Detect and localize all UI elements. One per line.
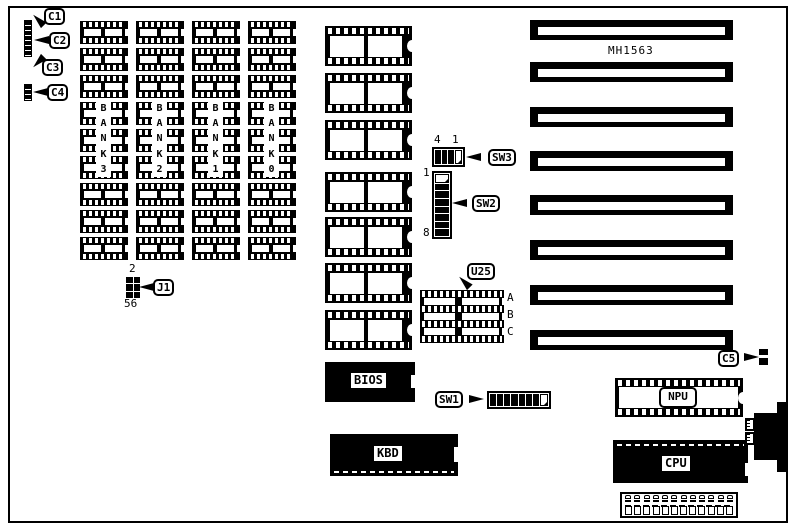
bank-label: BANK1 <box>208 101 223 177</box>
expansion-slot <box>530 20 733 40</box>
sw2-dip-switch <box>432 171 452 239</box>
motherboard-diagram: { "diagram": { "type": "motherboard comp… <box>0 0 791 531</box>
callout-sw2-pointer <box>452 199 467 207</box>
j1-pin56-label: 56 <box>124 298 137 310</box>
memory-chip <box>248 237 296 260</box>
callout-sw1-pointer <box>469 395 484 403</box>
callout-c2-pointer <box>34 36 49 44</box>
memory-chip <box>136 21 184 44</box>
u25-row-b-label: B <box>507 309 514 321</box>
memory-chip <box>80 48 128 71</box>
callout-c2: C2 <box>49 32 70 49</box>
keyboard-connector <box>754 413 780 460</box>
memory-chip <box>192 183 240 206</box>
expansion-slot <box>530 285 733 305</box>
dip-socket <box>325 172 412 212</box>
memory-chip <box>192 21 240 44</box>
bios-chip-label: BIOS <box>351 373 386 388</box>
expansion-slot <box>530 151 733 171</box>
u25-row-c-label: C <box>507 326 514 338</box>
bios-chip: BIOS <box>325 362 415 402</box>
sw2-pin1-label: 1 <box>423 167 430 179</box>
u25-row-a-label: A <box>507 292 514 304</box>
sw3-pin1-label: 1 <box>452 134 459 146</box>
connector-c4-strip <box>24 84 32 101</box>
power-connector <box>620 492 738 518</box>
memory-chip <box>248 183 296 206</box>
memory-chip <box>136 75 184 98</box>
npu-socket: NPU <box>615 378 743 417</box>
sw3-pin4-label: 4 <box>434 134 441 146</box>
memory-chip <box>192 237 240 260</box>
callout-c3: C3 <box>42 59 63 76</box>
bank-label: BANK3 <box>96 101 111 177</box>
callout-c1: C1 <box>44 8 65 25</box>
callout-c5: C5 <box>718 350 739 367</box>
j1-pin2-label: 2 <box>129 263 136 275</box>
dip-socket <box>325 217 412 257</box>
memory-chip <box>80 237 128 260</box>
kbd-chip: KBD <box>330 434 458 476</box>
connector-c5 <box>759 349 768 365</box>
sw1-dip-switch <box>487 391 551 409</box>
npu-chip-label: NPU <box>659 387 697 408</box>
memory-chip <box>192 48 240 71</box>
expansion-slot <box>530 240 733 260</box>
expansion-slot <box>530 195 733 215</box>
dip-socket <box>325 310 412 350</box>
callout-c5-pointer <box>744 353 759 361</box>
memory-chip <box>136 48 184 71</box>
callout-sw3: SW3 <box>488 149 516 166</box>
memory-chip <box>248 210 296 233</box>
callout-u25: U25 <box>467 263 495 280</box>
callout-c4: C4 <box>47 84 68 101</box>
memory-chip <box>136 237 184 260</box>
memory-chip <box>80 21 128 44</box>
aux-connector-2 <box>745 432 755 445</box>
memory-chip <box>192 75 240 98</box>
callout-sw1: SW1 <box>435 391 463 408</box>
cpu-chip-label: CPU <box>662 456 690 471</box>
callout-sw2: SW2 <box>472 195 500 212</box>
u25-socket <box>420 290 504 343</box>
memory-chip <box>80 75 128 98</box>
sw2-pin8-label: 8 <box>423 227 430 239</box>
bank-label: BANK0 <box>264 101 279 177</box>
callout-c4-pointer <box>33 88 48 96</box>
dip-socket <box>325 120 412 160</box>
memory-chip <box>192 210 240 233</box>
memory-chip <box>136 183 184 206</box>
memory-chip <box>80 210 128 233</box>
kbd-chip-label: KBD <box>374 446 402 461</box>
callout-j1-pointer <box>139 283 154 291</box>
sw3-dip-switch <box>432 147 465 167</box>
bank-label: BANK2 <box>152 101 167 177</box>
expansion-slot <box>530 62 733 82</box>
cpu-chip: CPU <box>613 440 748 483</box>
memory-chip <box>248 48 296 71</box>
memory-chip <box>248 21 296 44</box>
expansion-slot <box>530 330 733 350</box>
callout-j1: J1 <box>153 279 174 296</box>
connector-c1-c3-strip <box>24 20 32 57</box>
memory-chip <box>248 75 296 98</box>
board-model-label: MH1563 <box>608 45 654 57</box>
memory-chip <box>80 183 128 206</box>
dip-socket <box>325 263 412 303</box>
aux-connector-1 <box>745 418 755 431</box>
dip-socket <box>325 73 412 113</box>
callout-sw3-pointer <box>466 153 481 161</box>
memory-chip <box>136 210 184 233</box>
dip-socket <box>325 26 412 66</box>
expansion-slot <box>530 107 733 127</box>
